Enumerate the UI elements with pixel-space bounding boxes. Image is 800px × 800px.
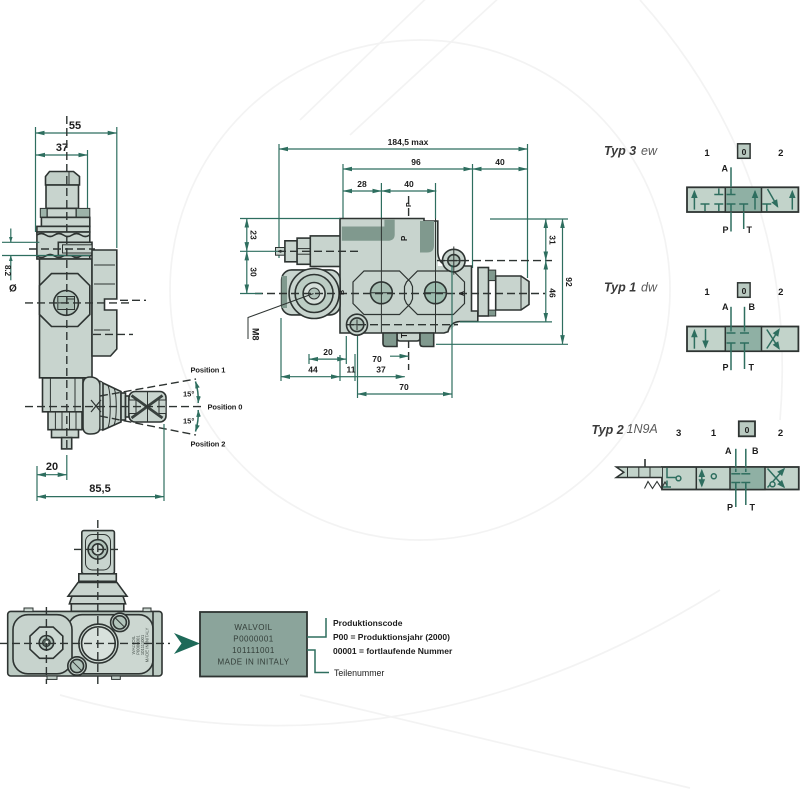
- svg-text:28: 28: [357, 179, 367, 189]
- svg-text:T: T: [747, 225, 753, 235]
- svg-text:2: 2: [778, 287, 783, 298]
- svg-text:31: 31: [548, 235, 558, 245]
- svg-text:MADE IN INITALY: MADE IN INITALY: [145, 628, 150, 663]
- svg-text:20: 20: [46, 461, 58, 473]
- svg-text:B: B: [752, 446, 759, 456]
- svg-text:A: A: [459, 291, 466, 296]
- svg-text:P: P: [400, 235, 409, 241]
- svg-text:A: A: [722, 164, 729, 174]
- svg-text:P: P: [722, 225, 728, 235]
- svg-text:96: 96: [411, 157, 421, 167]
- svg-text:30: 30: [249, 267, 259, 277]
- svg-text:ew: ew: [641, 144, 658, 158]
- svg-text:11: 11: [347, 365, 356, 375]
- svg-text:dw: dw: [641, 281, 658, 295]
- svg-text:P0000001: P0000001: [233, 635, 274, 644]
- svg-text:40: 40: [495, 157, 505, 167]
- svg-text:A: A: [722, 302, 729, 312]
- svg-text:0: 0: [742, 286, 747, 296]
- svg-text:20: 20: [323, 347, 333, 357]
- svg-text:M8: M8: [251, 328, 261, 341]
- svg-text:55: 55: [69, 120, 81, 132]
- svg-text:70: 70: [372, 354, 382, 364]
- svg-text:1: 1: [704, 287, 710, 298]
- svg-text:3: 3: [676, 428, 681, 439]
- svg-text:P: P: [727, 503, 733, 513]
- svg-text:T: T: [749, 363, 755, 373]
- svg-text:15°: 15°: [183, 417, 194, 426]
- svg-text:Typ 3: Typ 3: [604, 144, 636, 158]
- svg-text:T: T: [400, 333, 409, 338]
- svg-text:B: B: [339, 290, 346, 295]
- svg-text:Teilenummer: Teilenummer: [334, 668, 384, 678]
- svg-text:92: 92: [564, 277, 574, 287]
- svg-text:1: 1: [704, 148, 710, 159]
- svg-text:Produktionscode: Produktionscode: [333, 618, 403, 628]
- svg-text:8.2: 8.2: [3, 265, 12, 277]
- svg-text:2: 2: [778, 148, 783, 159]
- svg-text:MADE IN INITALY: MADE IN INITALY: [217, 658, 289, 667]
- svg-text:Typ 2: Typ 2: [592, 423, 624, 437]
- svg-text:23: 23: [249, 230, 259, 240]
- svg-text:15°: 15°: [183, 390, 194, 399]
- svg-text:1N9A: 1N9A: [627, 422, 658, 436]
- svg-text:Ø: Ø: [9, 284, 17, 295]
- svg-text:Position 1: Position 1: [191, 366, 226, 375]
- svg-text:Position 2: Position 2: [191, 440, 226, 449]
- svg-text:2: 2: [778, 428, 783, 439]
- svg-text:P: P: [406, 202, 413, 207]
- svg-text:WALVOIL: WALVOIL: [234, 623, 272, 632]
- svg-text:A: A: [725, 446, 732, 456]
- svg-text:Typ 1: Typ 1: [604, 281, 636, 295]
- svg-text:44: 44: [308, 365, 318, 375]
- svg-text:40: 40: [404, 179, 414, 189]
- svg-text:P: P: [722, 363, 728, 373]
- svg-text:85,5: 85,5: [89, 483, 110, 495]
- svg-text:0: 0: [742, 147, 747, 157]
- svg-text:70: 70: [399, 382, 409, 392]
- svg-text:46: 46: [548, 288, 558, 298]
- svg-text:1: 1: [711, 428, 717, 439]
- svg-text:0: 0: [745, 425, 750, 435]
- svg-text:00001 = fortlaufende Nummer: 00001 = fortlaufende Nummer: [333, 646, 453, 656]
- svg-text:37: 37: [376, 365, 386, 375]
- svg-text:101111001: 101111001: [232, 646, 275, 655]
- svg-text:B: B: [749, 302, 756, 312]
- svg-text:P00 = Produktionsjahr (2000): P00 = Produktionsjahr (2000): [333, 632, 450, 642]
- svg-text:184,5 max: 184,5 max: [388, 137, 429, 147]
- svg-text:T: T: [750, 503, 756, 513]
- svg-text:Position 0: Position 0: [208, 403, 243, 412]
